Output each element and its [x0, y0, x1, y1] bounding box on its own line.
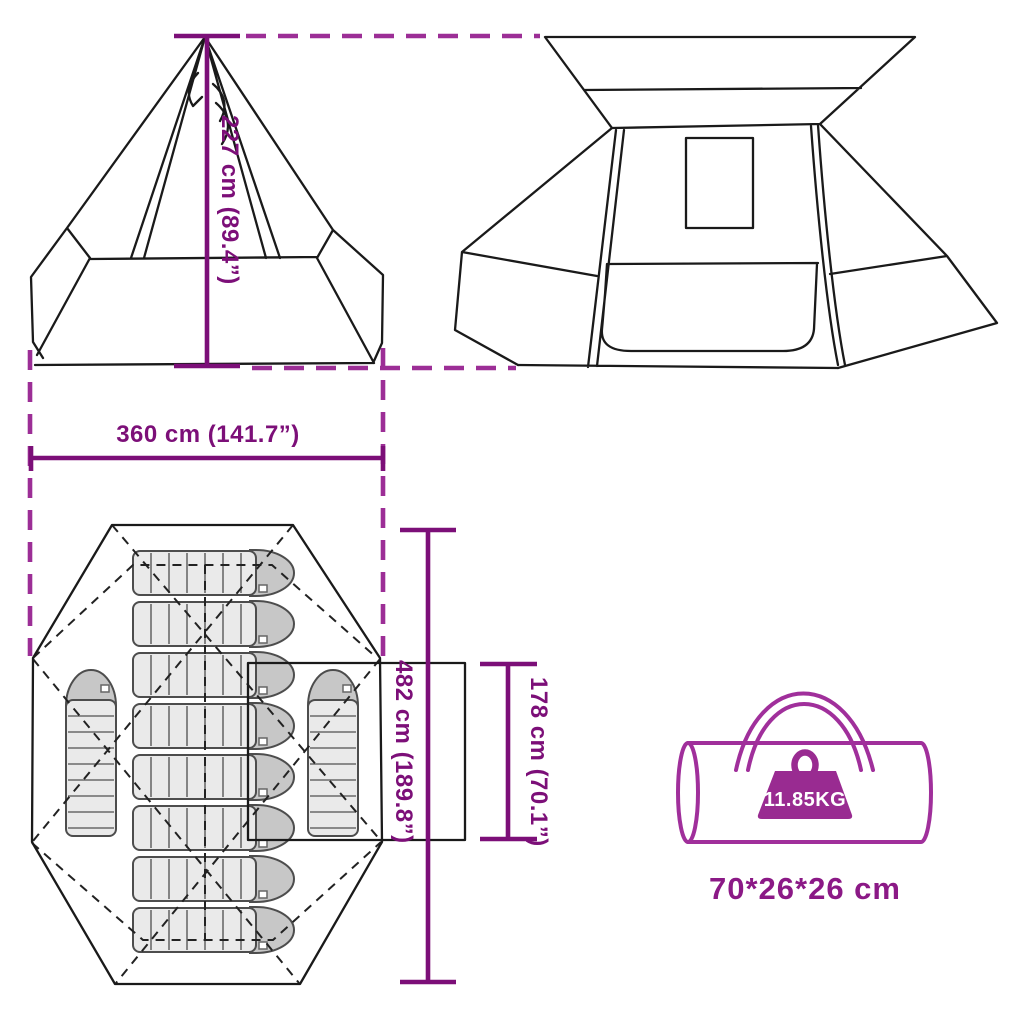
carry-bag-end-cap	[678, 743, 698, 842]
product-dimension-diagram: 227 cm (89.4”) 360 cm (141.7”) 482 cm (1…	[0, 0, 1024, 1024]
rear-roof	[545, 37, 915, 128]
carry-bag-outline	[678, 694, 931, 843]
sleeping-bag	[133, 754, 294, 800]
carry-bag-handles	[736, 694, 873, 771]
height-dimension-label: 227 cm (89.4”)	[216, 115, 243, 285]
packed-size-label: 70*26*26 cm	[709, 871, 901, 906]
carry-bag-illustration: 11.85KG 70*26*26 cm	[678, 694, 931, 907]
tent-rear-view	[455, 37, 997, 368]
rear-left-wing	[455, 128, 612, 365]
door-dimension-label: 178 cm (70.1”)	[525, 677, 552, 847]
weight-label: 11.85KG	[764, 789, 846, 811]
length-dimension-label: 482 cm (189.8”)	[390, 660, 417, 844]
width-dimension-line	[31, 446, 383, 471]
rear-right-wing	[820, 124, 997, 368]
sleeping-bag	[66, 670, 116, 836]
rear-window	[686, 138, 753, 228]
weight-icon: 11.85KG	[758, 753, 852, 820]
rear-body-panel	[518, 125, 845, 368]
sleeping-bag	[308, 670, 358, 836]
sleeping-bag	[133, 805, 294, 851]
sleeping-bag	[133, 550, 294, 596]
width-dimension-label: 360 cm (141.7”)	[116, 421, 300, 448]
sleeping-bag	[133, 601, 294, 647]
